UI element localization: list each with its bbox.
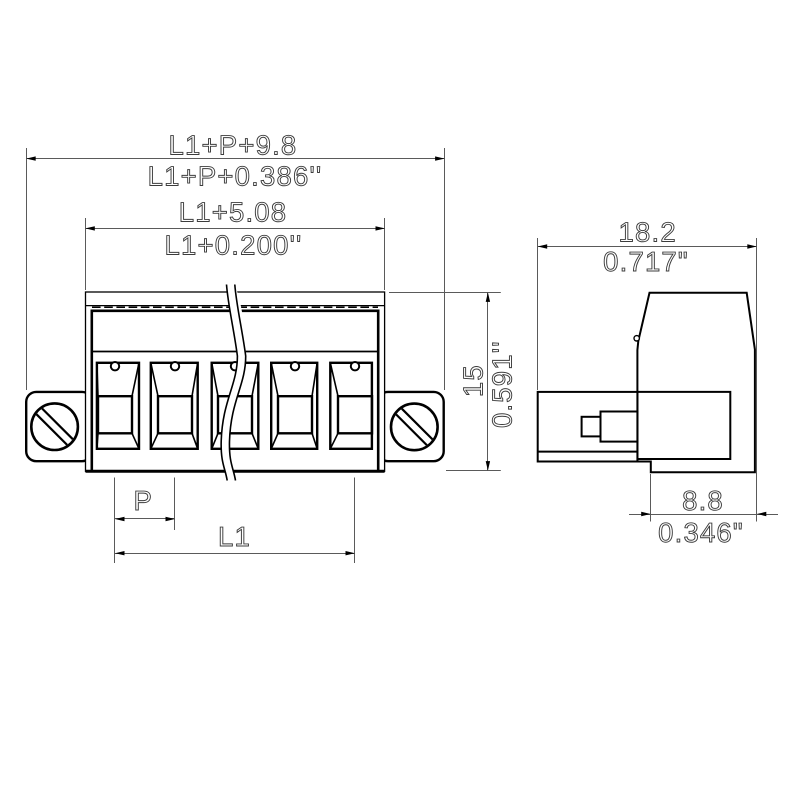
svg-text:0.591'': 0.591''	[487, 340, 518, 428]
svg-text:L1+P+9.8: L1+P+9.8	[169, 130, 298, 161]
svg-text:L1+5.08: L1+5.08	[179, 197, 288, 228]
svg-text:0.346": 0.346"	[658, 517, 744, 548]
svg-text:L1+0.200'': L1+0.200''	[165, 230, 303, 261]
svg-text:18.2: 18.2	[619, 216, 677, 247]
svg-text:15: 15	[458, 364, 489, 397]
svg-text:0.717": 0.717"	[603, 246, 689, 277]
svg-text:L1+P+0.386'': L1+P+0.386''	[148, 161, 323, 192]
svg-text:P: P	[134, 485, 154, 516]
svg-text:L1: L1	[218, 521, 251, 552]
svg-text:8.8: 8.8	[682, 485, 724, 516]
